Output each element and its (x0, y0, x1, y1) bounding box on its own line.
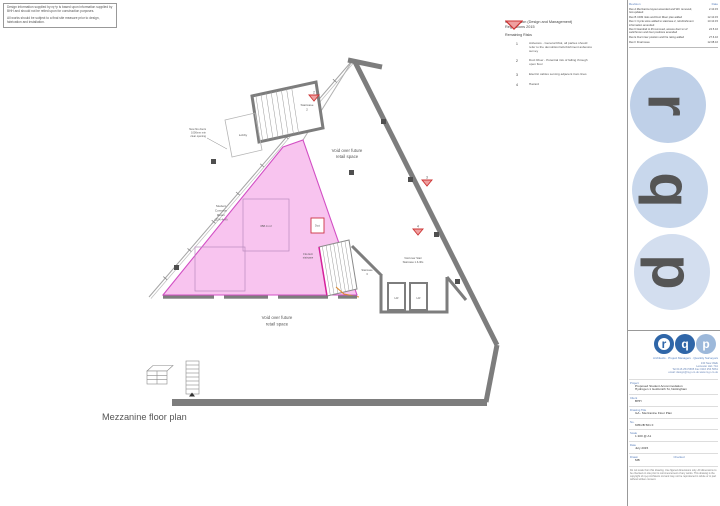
hazard-marker: 1 (505, 42, 529, 53)
cdm-risk-item: 1 Asbestos - General Risk, all parties s… (505, 42, 621, 53)
revision-table-header: Revision Date (629, 2, 718, 6)
staircase-2-label: Staircase (301, 103, 314, 107)
date-column-header: Date (712, 2, 718, 6)
void-label-lower: retail space (266, 322, 289, 327)
hazard-marker: 2 (505, 59, 529, 66)
cdm-risk-item: 2 Duct Riser - Potential risk of falling… (505, 59, 621, 66)
firm-address: 130 New Walk Leicester LE1 7JA Tel 0116 … (629, 362, 718, 375)
cdm-key-subtitle: Remaining Risks (505, 33, 621, 37)
fire-exit-label: staircase (303, 255, 314, 259)
duct-riser: Duct (311, 218, 324, 233)
revision-row: Rev E Duct riser position and fire ratin… (629, 36, 718, 39)
revision-row: Rev C Cycle store added to staircase 2, … (629, 20, 718, 26)
fire-exit-label: Fire Exit (303, 252, 313, 256)
revision-note: Rev D Handrail to lift removed, access d… (629, 28, 695, 34)
revision-note: Rev B CDM risks and Duct Riser plan adde… (629, 16, 695, 19)
revision-row: Rev D Handrail to lift removed, access d… (629, 28, 718, 34)
field-value: 6051/B 501 F (635, 424, 717, 428)
staircase-2-label: 2 (306, 108, 308, 112)
field-value: BHH (635, 400, 717, 404)
revision-table: Revision Date Rev A Mezzanine layout ame… (629, 2, 718, 48)
field-value: GA - Mezzanine Floor Plan (635, 412, 717, 416)
void-over-stair-label: Staircase 1 & lifts (403, 260, 424, 264)
void-label-upper: retail space (336, 154, 359, 159)
title-block-fields: Project Proposed Student Accommodation H… (629, 379, 718, 484)
revision-note: Rev A Mezzanine layout amended and WC re… (629, 8, 695, 14)
field-label: Checked (674, 455, 718, 459)
field-project: Project Proposed Student Accommodation H… (629, 379, 718, 394)
hazard-description: Duct Riser - Potential risk of falling t… (529, 59, 593, 66)
design-note-box: Design information supplied by rq+p is b… (3, 3, 117, 28)
revision-note: Rev E Duct riser position and fire ratin… (629, 36, 695, 39)
zone-area-label: 358.4 m² (260, 224, 272, 228)
field-drawing-title: Drawing Title GA - Mezzanine Floor Plan (629, 406, 718, 418)
common-room-label: Student (216, 204, 227, 208)
rqp-logo: r q p (629, 334, 716, 354)
revision-row: Rev F Final issue12.08.16 (629, 41, 718, 44)
revision-note: Rev F Final issue (629, 41, 695, 44)
hazard-marker: 3 (505, 73, 529, 77)
fire-door-note-text: New fire doors (189, 127, 206, 131)
hazard-number: 3 (426, 176, 428, 180)
staircase-3-label: 3 (366, 272, 368, 276)
fire-door-note-text: clear opening (190, 134, 206, 138)
bottom-wall-band (163, 296, 357, 299)
void-label-lower: Void over future (262, 315, 293, 320)
hazard-triangle-icon (505, 20, 523, 30)
revision-note: Rev C Cycle store added to staircase 2, … (629, 20, 695, 26)
drawing-sheet: r q p Student Co (0, 0, 720, 506)
hazard-number: 1 (516, 42, 518, 46)
field-value: July 2015 (635, 447, 717, 451)
field-drawn: Drawn MB (630, 455, 674, 463)
address-line: email: design@rq-p.co.uk www.rq-p.co.uk (629, 371, 718, 374)
field-value: 1:100 @ A1 (635, 435, 717, 439)
common-room-area-label: (224.4m²) (214, 218, 227, 222)
cdm-regulations-key: Construction (Design and Management) Reg… (505, 20, 621, 93)
field-drawn-checked: Drawn MB Checked (629, 453, 718, 465)
duct-riser-label: Duct (315, 225, 320, 228)
hazard-description: Hazard (529, 83, 593, 87)
logo-circle-r: r (654, 334, 674, 354)
fire-door-note: New fire doors 1000mm min clear opening (189, 127, 227, 149)
field-client: Client BHH (629, 394, 718, 406)
hazard-marker: 4 (505, 83, 529, 87)
revision-date: 2.10.15 (700, 8, 718, 14)
revision-date: 12.08.16 (700, 41, 718, 44)
logo-circle-q: q (675, 334, 695, 354)
revision-date: 27.6.16 (700, 36, 718, 39)
cdm-risk-item: 3 Electric cables serving adjacent tram … (505, 73, 621, 77)
hazard-number: 2 (516, 59, 518, 63)
design-note-paragraph: All works should be subject to a final s… (7, 17, 113, 25)
firm-disciplines: Architects · Project Managers · Quantity… (629, 356, 718, 360)
cdm-risk-item: 4 Hazard (505, 83, 621, 87)
copyright-disclaimer: Do not scale from this drawing. Use figu… (629, 466, 718, 483)
void-label-upper: Void over future (332, 148, 363, 153)
field-value: MB (635, 459, 674, 463)
revision-row: Rev B CDM risks and Duct Riser plan adde… (629, 16, 718, 19)
hazard-description: Asbestos - General Risk, all parties sho… (529, 42, 593, 53)
title-block: r q p Architects · Project Managers · Qu… (627, 330, 720, 506)
hazard-description: Electric cables serving adjacent tram li… (529, 73, 593, 77)
field-date: Date July 2015 (629, 441, 718, 453)
field-scale: Scale 1:100 @ A1 (629, 429, 718, 441)
design-note-paragraph: Design information supplied by rq+p is b… (7, 6, 113, 14)
detail-drawing-cupboard (147, 366, 173, 385)
field-drawing-number: No. 6051/B 501 F (629, 418, 718, 430)
void-over-stair-label: Void over Stair (404, 256, 422, 260)
lobby-label: Lobby (239, 133, 248, 137)
logo-circle-p: p (696, 334, 716, 354)
hazard-marker-3: 3 (422, 176, 432, 187)
plan-title: Mezzanine floor plan (102, 412, 187, 422)
revision-column-header: Revision (629, 2, 641, 6)
revision-date: 13.10.15 (700, 20, 718, 26)
hazard-marker-4: 4 (413, 225, 423, 236)
hazard-number: 2 (313, 91, 315, 95)
staircase-3-label: Staircase (361, 268, 373, 272)
revision-row: Rev A Mezzanine layout amended and WC re… (629, 8, 718, 14)
hazard-number: 4 (417, 225, 419, 229)
field-checked: Checked (674, 455, 718, 463)
hazard-number: 3 (516, 73, 518, 77)
revision-date: 24.5.16 (700, 28, 718, 34)
common-room-label: Room (217, 213, 226, 217)
field-value: Hydrogen 1 Goldsmith St, Nottingham (635, 388, 717, 392)
revision-date: 12.10.15 (700, 16, 718, 19)
fire-door-note-text: 1000mm min (191, 130, 207, 134)
hazard-number: 4 (516, 83, 518, 87)
common-room-label: Common (215, 209, 228, 213)
detail-drawing-stair-section (186, 361, 199, 397)
